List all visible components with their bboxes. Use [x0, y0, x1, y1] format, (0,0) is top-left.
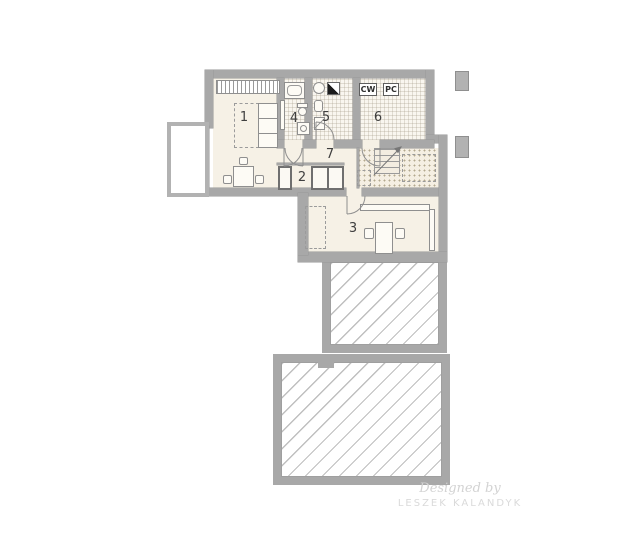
terrace-lower	[273, 354, 450, 485]
room-6-label: 6	[370, 110, 386, 126]
room-5-label: 5	[318, 110, 334, 126]
room-2-label: 2	[294, 170, 310, 186]
cw-hot-water-label: CW	[359, 83, 377, 96]
wall-nook-beam	[277, 163, 344, 165]
chair-top	[239, 157, 248, 165]
terrace-lower-hatch	[281, 362, 442, 477]
chair-right	[255, 175, 264, 184]
wardrobe-unit-left	[278, 166, 292, 190]
sofa-cushion-line	[259, 133, 277, 134]
floor-plan: CW PC	[0, 0, 638, 556]
bathtub-basin	[287, 85, 302, 96]
wall-hall-seg3	[334, 140, 362, 148]
terrace-upper	[322, 252, 447, 353]
radiator-room4	[280, 100, 285, 130]
wall-hall-seg4	[380, 140, 434, 148]
bathtub	[284, 82, 305, 99]
wardrobe-divider	[327, 168, 329, 188]
pc-boiler-label: PC	[383, 83, 399, 96]
terrace-upper-hatch	[330, 262, 439, 345]
dining-table	[233, 166, 254, 187]
terrace-lower-step	[318, 354, 334, 368]
room-1-label: 1	[236, 110, 252, 126]
wall-bottom-right	[362, 188, 447, 196]
watermark-designer-name: LESZEK KALANDYK	[385, 498, 535, 509]
room-4-label: 4	[286, 111, 302, 127]
wall-top	[205, 70, 434, 78]
pillar-bottom	[455, 136, 469, 158]
sofa-cushion-line	[259, 118, 277, 119]
floor-plan-canvas: CW PC	[0, 0, 638, 556]
pc-text: PC	[385, 85, 397, 94]
stair-dashed-zone-small	[357, 170, 371, 186]
cw-text: CW	[361, 85, 376, 94]
wall-right-mid	[439, 135, 447, 262]
washbasin-round	[313, 82, 325, 94]
desk	[375, 222, 393, 254]
pillar-top	[455, 71, 469, 91]
room-7-label: 7	[322, 147, 338, 163]
chair-left	[223, 175, 232, 184]
radiator-room3	[429, 209, 435, 251]
wall-hall-seg2	[303, 140, 316, 148]
furniture-dashed-outline-room3	[305, 206, 326, 249]
watermark-designed-by: Designed by	[385, 481, 535, 496]
desk-chair-left	[364, 228, 374, 239]
staircase	[374, 148, 400, 174]
wall-hall-seg1	[277, 140, 284, 148]
wall-left-upper	[205, 70, 213, 128]
wall-right-upper	[426, 70, 434, 142]
desk-chair-right	[395, 228, 405, 239]
wall-room3-bottom	[298, 252, 447, 262]
sofa-bed	[258, 103, 278, 148]
wardrobe-unit-right	[311, 166, 344, 190]
designer-watermark: Designed by LESZEK KALANDYK	[385, 481, 535, 509]
room-3-door-gap-floor	[346, 188, 362, 196]
corner-shower	[327, 82, 340, 95]
room-3-label: 3	[345, 221, 361, 237]
wardrobe-hanger-strip	[216, 80, 280, 94]
stair-dashed-zone	[402, 154, 436, 182]
balcony	[167, 122, 209, 197]
shelf-room3	[360, 204, 430, 211]
